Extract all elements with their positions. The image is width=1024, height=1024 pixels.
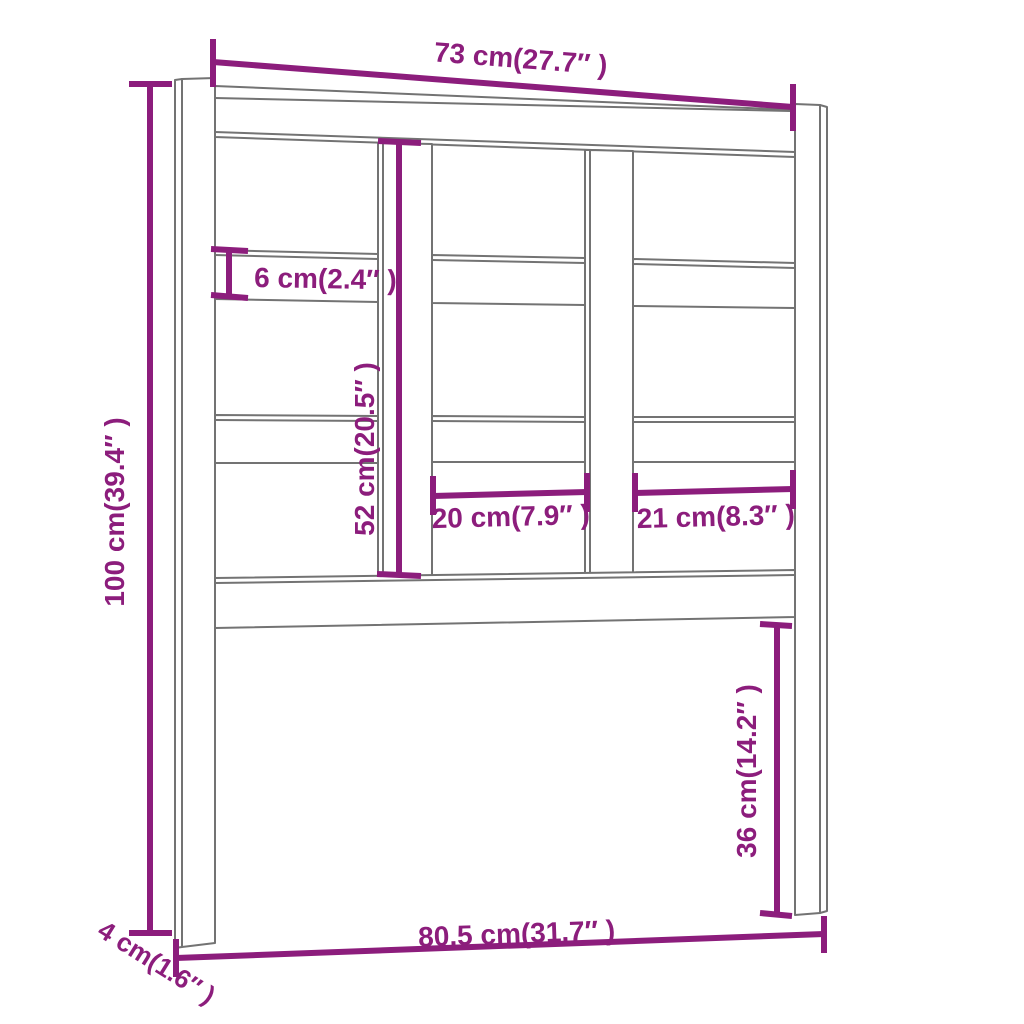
dim-top-width-label: 73 cm(27.7″ ) (433, 36, 609, 80)
middle-slat-1-front-face (383, 143, 432, 577)
dim-leg-height-cap-bottom (760, 913, 792, 916)
headboard-dimension-drawing: 73 cm(27.7″ ) 100 cm(39.4″ ) 6 cm(2.4″ )… (0, 0, 1024, 1024)
lower-cross-rail-right (633, 417, 795, 462)
dim-panel-height-cap-top (378, 141, 421, 143)
lower-cross-rail-middle-top-face-edge (432, 421, 585, 422)
dim-panel-height-label: 52 cm(20.5″ ) (349, 362, 380, 536)
top-rail (215, 86, 795, 157)
dim-rail-height-label: 6 cm(2.4″ ) (254, 262, 397, 295)
left-post-side-face (175, 79, 182, 948)
left-post-front-face (182, 78, 215, 947)
dim-leg-height-label: 36 cm(14.2″ ) (731, 684, 762, 858)
dim-rail-height-cap-top (211, 249, 248, 251)
lower-cross-rail-middle (432, 416, 585, 462)
dim-gap-left-label: 20 cm(7.9″ ) (431, 499, 590, 534)
dim-gap-left: 20 cm(7.9″ ) (431, 473, 590, 534)
dim-bottom-width-label: 80,5 cm(31.7″ ) (418, 914, 616, 952)
dimension-diagram: 73 cm(27.7″ ) 100 cm(39.4″ ) 6 cm(2.4″ )… (0, 0, 1024, 1024)
right-post-front-face (795, 104, 820, 915)
dim-panel-height-cap-bottom (377, 574, 421, 576)
dim-bottom-width: 80,5 cm(31.7″ ) (176, 914, 824, 977)
dim-total-height: 100 cm(39.4″ ) (99, 84, 172, 933)
dim-gap-right-label: 21 cm(8.3″ ) (636, 499, 795, 534)
dim-gap-left-line (433, 492, 587, 496)
dim-total-height-label: 100 cm(39.4″ ) (99, 417, 130, 606)
right-post-side-face (820, 105, 827, 913)
dim-leg-height-cap-top (760, 624, 792, 626)
dim-gap-right: 21 cm(8.3″ ) (635, 470, 795, 534)
dim-rail-height-cap-bottom (211, 295, 248, 298)
dim-gap-right-line (635, 489, 793, 493)
dim-leg-height: 36 cm(14.2″ ) (731, 624, 792, 916)
middle-slat-2-front-face (590, 150, 633, 576)
